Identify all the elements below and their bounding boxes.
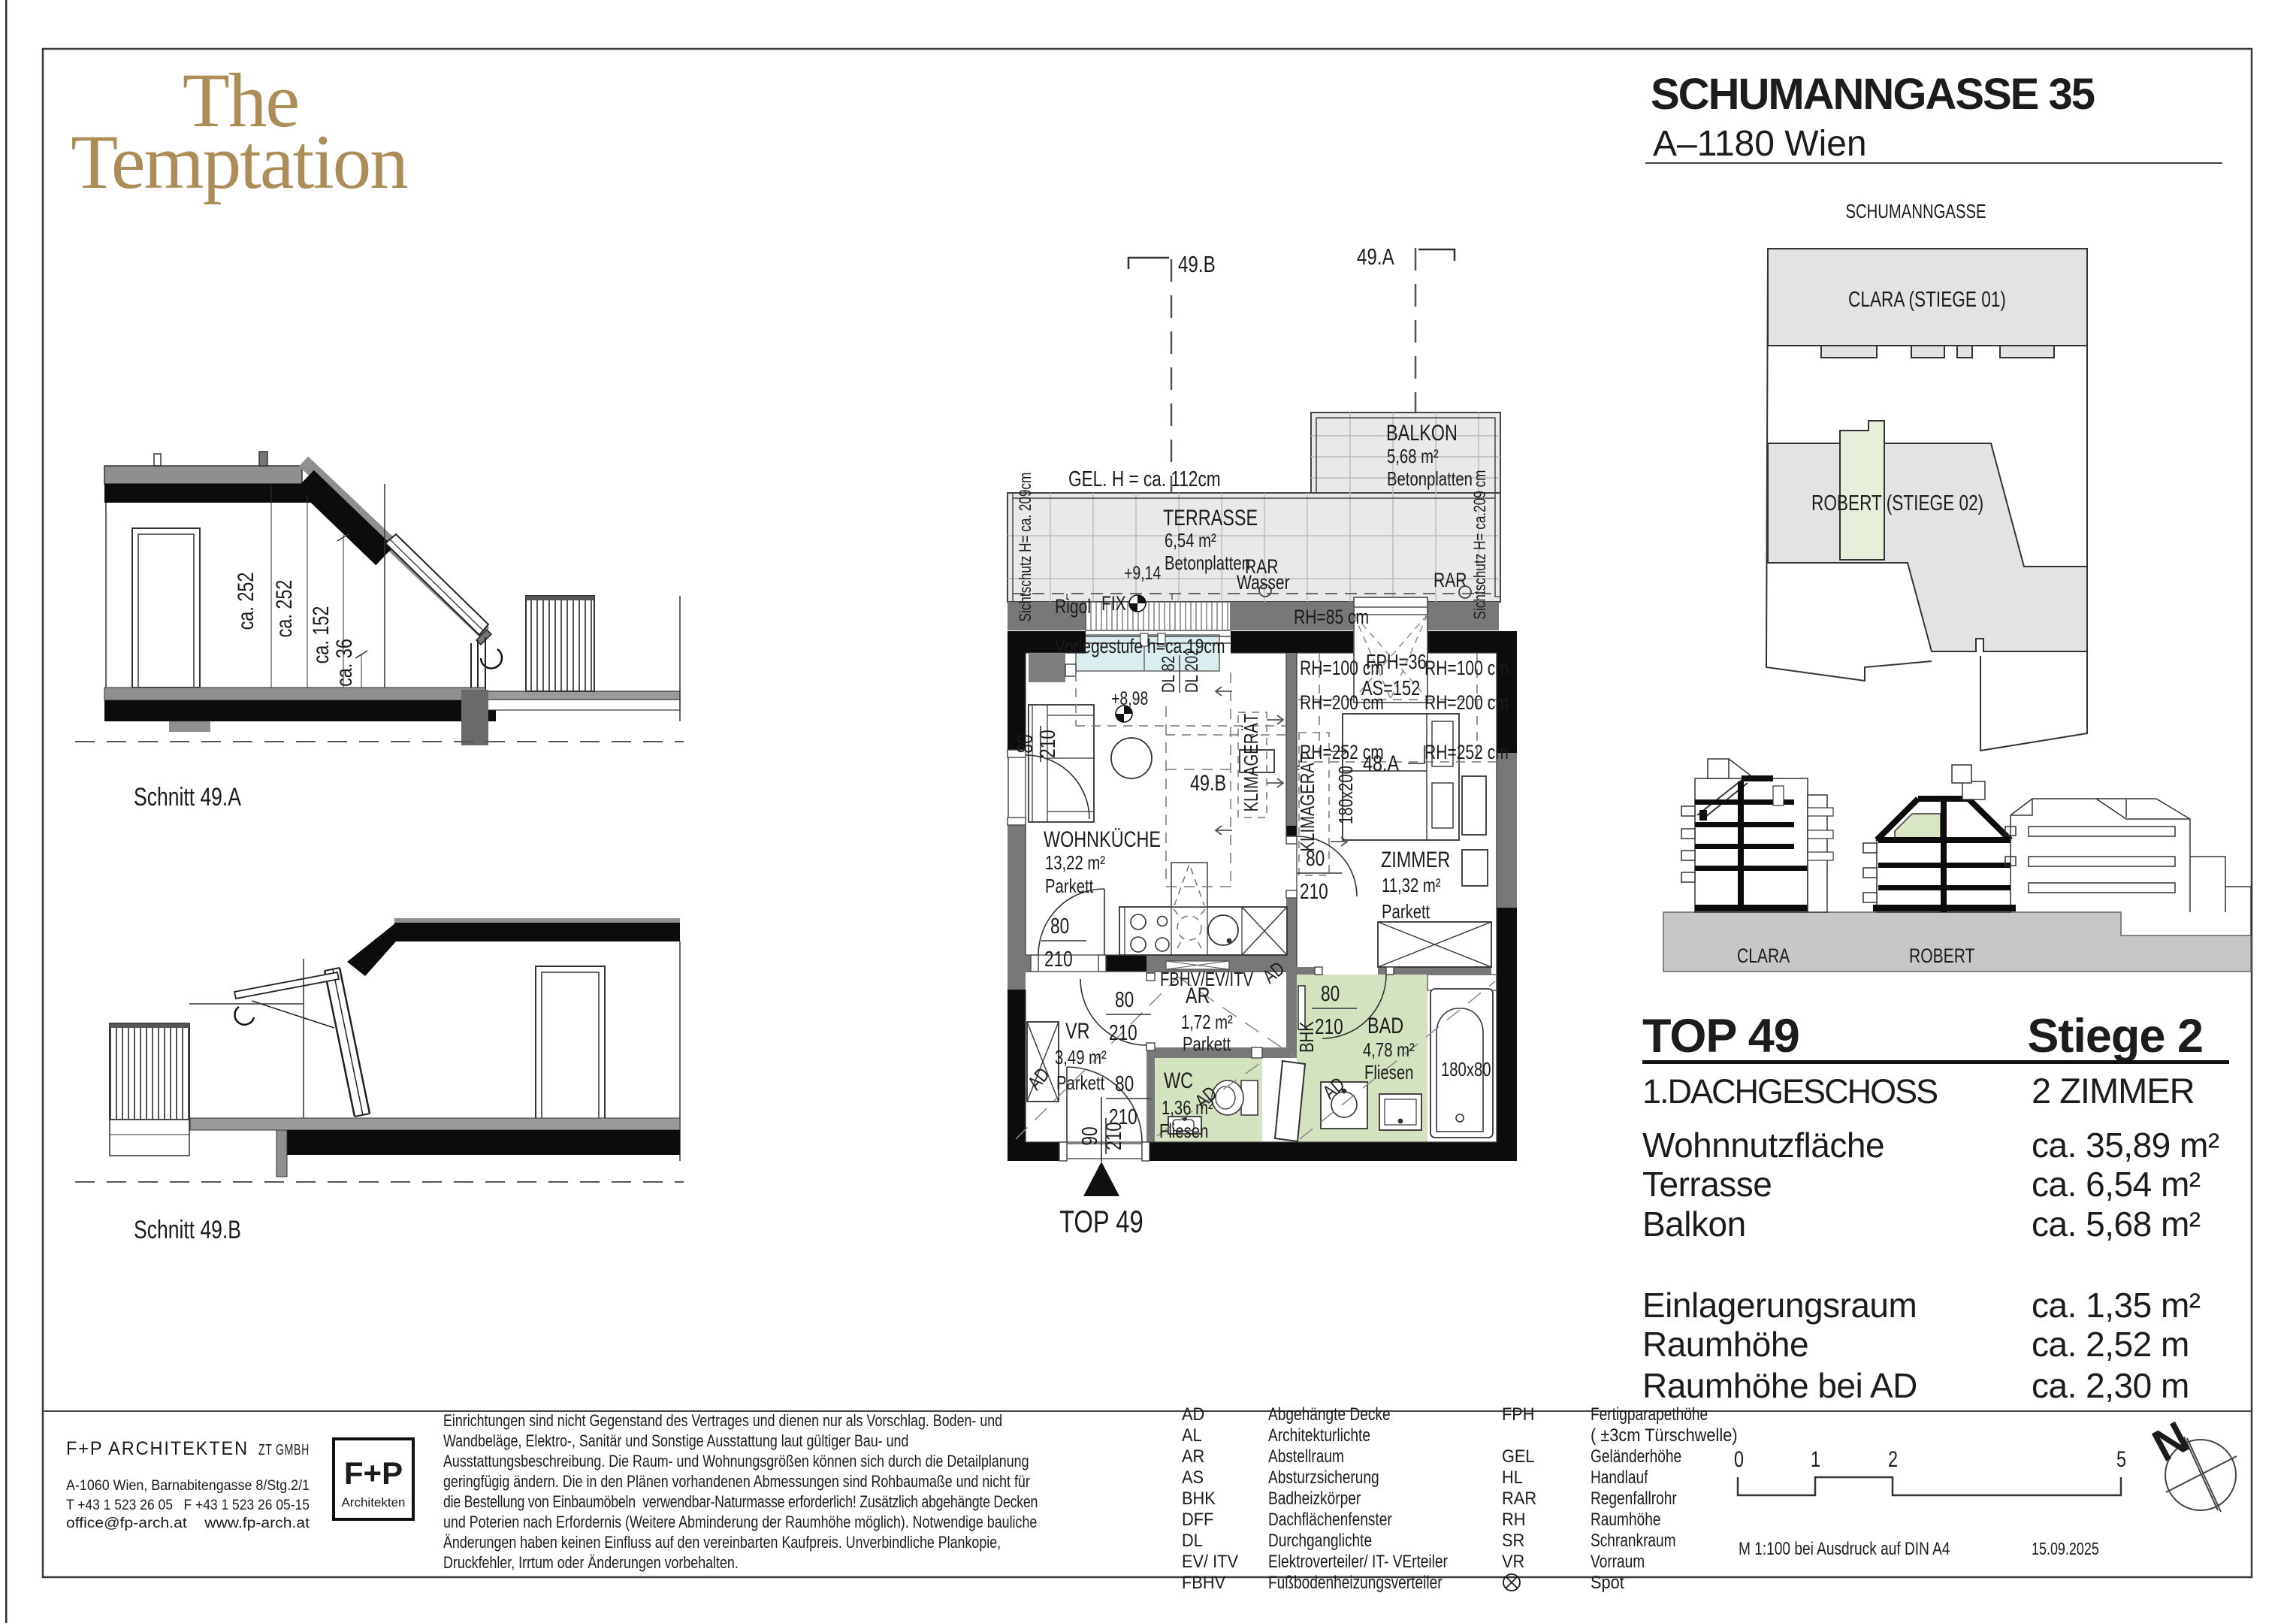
svg-text:Änderungen haben keinen Einflu: Änderungen haben keinen Einfluss auf den… [443,1533,1001,1552]
svg-text:FPH: FPH [1502,1404,1535,1425]
svg-text:WOHNKÜCHE: WOHNKÜCHE [1044,827,1161,852]
svg-text:5,68 m²: 5,68 m² [1387,445,1439,467]
svg-text:T +43 1 523 26 05 F +43 1 52: T +43 1 523 26 05 F +43 1 523 26 05-15 [66,1498,310,1513]
svg-text:ca. 5,68 m²: ca. 5,68 m² [2032,1204,2201,1244]
svg-text:Absturzsicherung: Absturzsicherung [1268,1467,1379,1488]
svg-text:Fliesen: Fliesen [1159,1120,1208,1142]
svg-text:ca. 252: ca. 252 [272,580,297,638]
svg-text:ca. 36: ca. 36 [332,639,357,687]
svg-text:Schrankraum: Schrankraum [1591,1531,1676,1551]
svg-text:DL 202: DL 202 [1182,648,1202,693]
svg-text:Raumhöhe: Raumhöhe [1642,1325,1808,1364]
svg-text:RH=85 cm: RH=85 cm [1294,606,1369,628]
svg-text:Sichtschutz H= ca.209 cm: Sichtschutz H= ca.209 cm [1470,470,1489,620]
svg-text:A-1060 Wien, Barnabitengasse 8: A-1060 Wien, Barnabitengasse 8/Stg.2/1 [66,1478,310,1494]
svg-text:Temptation: Temptation [71,119,407,205]
svg-text:Raumhöhe: Raumhöhe [1591,1510,1661,1530]
svg-text:ca. 152: ca. 152 [309,606,334,664]
svg-text:DL 82: DL 82 [1159,656,1179,693]
svg-text:2 ZIMMER: 2 ZIMMER [2032,1071,2195,1111]
svg-text:210: 210 [1036,730,1060,758]
svg-text:Wohnnutzfläche: Wohnnutzfläche [1642,1126,1884,1165]
svg-text:SR: SR [1502,1531,1524,1551]
svg-text:die Bestellung von Einbaumöbel: die Bestellung von Einbaumöbeln verwendb… [443,1492,1038,1511]
svg-text:TERRASSE: TERRASSE [1163,506,1258,530]
svg-text:Geländerhöhe: Geländerhöhe [1591,1446,1681,1467]
svg-text:und Poterien nach Erfordernis: und Poterien nach Erfordernis (Weitere A… [443,1513,1037,1531]
svg-text:80: 80 [1306,847,1325,871]
svg-text:Parkett: Parkett [1382,900,1430,923]
svg-text:3,49 m²: 3,49 m² [1055,1046,1107,1068]
svg-text:Badheizkörper: Badheizkörper [1268,1489,1361,1509]
svg-text:RH=100 cm: RH=100 cm [1424,657,1509,679]
svg-text:Parkett: Parkett [1045,875,1094,897]
svg-text:13,22 m²: 13,22 m² [1045,851,1105,874]
svg-text:0: 0 [1734,1447,1744,1472]
svg-text:90: 90 [1078,1126,1102,1145]
svg-text:VR: VR [1502,1552,1524,1572]
svg-text:80: 80 [1115,1072,1134,1096]
svg-text:Schnitt 49.A: Schnitt 49.A [134,783,241,811]
svg-text:office@fp-arch.at www.fp-ar: office@fp-arch.at www.fp-arch.at [66,1516,310,1531]
svg-text:Einrichtungen sind nicht Gegen: Einrichtungen sind nicht Gegenstand des … [443,1411,1002,1430]
svg-text:Druckfehler, Irrtum oder Änder: Druckfehler, Irrtum oder Änderungen vorb… [443,1553,739,1572]
svg-text:ROBERT: ROBERT [1909,944,1974,967]
svg-text:1,72 m²: 1,72 m² [1181,1011,1233,1033]
svg-text:Architekturlichte: Architekturlichte [1268,1425,1370,1446]
svg-text:+9,14: +9,14 [1124,563,1161,584]
svg-text:ca. 2,52 m: ca. 2,52 m [2032,1325,2189,1364]
svg-text:Abgehängte Decke: Abgehängte Decke [1268,1404,1391,1425]
svg-text:80: 80 [1115,988,1134,1012]
svg-text:RH: RH [1502,1510,1526,1530]
svg-text:180x200: 180x200 [1334,766,1357,824]
svg-text:Dachflächenfenster: Dachflächenfenster [1268,1510,1392,1530]
svg-text:210: 210 [1044,948,1073,972]
svg-text:Schnitt 49.B: Schnitt 49.B [134,1216,241,1244]
svg-text:5: 5 [2116,1447,2126,1472]
svg-text:Architekten: Architekten [341,1495,405,1510]
svg-text:SCHUMANNGASSE 35: SCHUMANNGASSE 35 [1651,70,2095,119]
svg-text:ZIMMER: ZIMMER [1381,848,1450,872]
svg-text:BALKON: BALKON [1386,421,1458,446]
svg-text:Einlagerungsraum: Einlagerungsraum [1642,1286,1917,1325]
svg-text:80: 80 [1321,982,1340,1006]
svg-text:Fußbodenheizungsverteiler: Fußbodenheizungsverteiler [1268,1573,1443,1593]
svg-text:Parkett: Parkett [1056,1071,1105,1094]
svg-text:Handlauf: Handlauf [1591,1467,1648,1488]
svg-text:DFF: DFF [1182,1510,1213,1530]
svg-text:210: 210 [1109,1021,1137,1045]
svg-text:Wasser: Wasser [1237,571,1290,594]
svg-text:Stiege 2: Stiege 2 [2027,1010,2203,1062]
svg-text:EV/ ITV: EV/ ITV [1182,1552,1239,1572]
svg-text:FIX: FIX [1101,592,1126,615]
svg-text:DL: DL [1182,1531,1203,1551]
svg-text:Wandbeläge, Elektro-, Sanitär: Wandbeläge, Elektro-, Sanitär und Sonsti… [443,1431,908,1450]
svg-text:ROBERT (STIEGE 02): ROBERT (STIEGE 02) [1811,491,1983,515]
svg-text:( ±3cm Türschwelle): ( ±3cm Türschwelle) [1591,1425,1738,1446]
svg-text:KLIMAGERÄT: KLIMAGERÄT [1296,754,1319,852]
svg-text:Ausstattungsbeschreibung. Die: Ausstattungsbeschreibung. Die Raum- und … [443,1452,1029,1470]
svg-text:AD: AD [1182,1404,1204,1425]
svg-text:Balkon: Balkon [1642,1204,1746,1244]
svg-text:ZT GMBH: ZT GMBH [258,1442,310,1458]
svg-text:TOP 49: TOP 49 [1642,1010,1799,1062]
svg-text:HL: HL [1502,1467,1523,1488]
svg-text:Spot: Spot [1591,1573,1624,1593]
svg-text:49.B: 49.B [1178,251,1216,277]
svg-text:VR: VR [1065,1019,1090,1044]
svg-text:Regenfallrohr: Regenfallrohr [1591,1489,1677,1509]
svg-text:RH=200 cm: RH=200 cm [1300,691,1384,714]
svg-text:GEL. H = ca. 112cm: GEL. H = ca. 112cm [1068,467,1221,491]
svg-text:Vorraum: Vorraum [1591,1552,1645,1572]
svg-text:Durchganglichte: Durchganglichte [1268,1531,1372,1551]
svg-text:GEL: GEL [1502,1446,1535,1467]
svg-text:6,54 m²: 6,54 m² [1165,529,1216,552]
svg-text:210: 210 [1315,1015,1343,1039]
svg-text:49.B: 49.B [1190,771,1226,796]
svg-text:Betonplatten: Betonplatten [1387,467,1473,490]
svg-text:BHK: BHK [1182,1489,1216,1509]
svg-text:geringfügig ändern. Die in den: geringfügig ändern. Die in den Plänen vo… [443,1472,1030,1491]
svg-text:RH=252 cm: RH=252 cm [1424,741,1509,763]
svg-text:ca. 35,89 m²: ca. 35,89 m² [2032,1126,2219,1165]
svg-text:CLARA: CLARA [1737,944,1790,967]
svg-text:Fertigparapethöhe: Fertigparapethöhe [1591,1404,1708,1425]
svg-text:Parkett: Parkett [1183,1032,1231,1055]
svg-text:ca. 2,30 m: ca. 2,30 m [2032,1366,2189,1405]
svg-text:RAR: RAR [1502,1489,1536,1509]
svg-text:RH=100 cm: RH=100 cm [1300,657,1384,679]
svg-text:AL: AL [1182,1425,1202,1446]
svg-text:SCHUMANNGASSE: SCHUMANNGASSE [1845,200,1986,222]
svg-text:1: 1 [1811,1447,1820,1472]
svg-text:F+P: F+P [344,1455,403,1491]
svg-text:Terrasse: Terrasse [1642,1165,1772,1204]
svg-text:WC: WC [1164,1068,1193,1093]
svg-text:49.A: 49.A [1357,243,1394,270]
svg-text:11,32 m²: 11,32 m² [1382,874,1441,896]
svg-text:15.09.2025: 15.09.2025 [2032,1539,2099,1558]
svg-text:KLIMAGERÄT: KLIMAGERÄT [1240,714,1262,812]
svg-text:80: 80 [1050,914,1069,938]
svg-text:+8,98: +8,98 [1111,688,1148,709]
svg-text:F+P ARCHITEKTEN: F+P ARCHITEKTEN [66,1438,249,1459]
svg-text:210: 210 [1300,880,1328,904]
svg-text:180x80: 180x80 [1441,1058,1491,1080]
svg-text:48.A: 48.A [1363,751,1399,776]
svg-text:Elektroverteiler/ IT- VErteile: Elektroverteiler/ IT- VErteiler [1268,1552,1448,1572]
svg-text:A–1180 Wien: A–1180 Wien [1653,124,1867,164]
svg-text:ca. 6,54 m²: ca. 6,54 m² [2032,1165,2201,1204]
svg-text:2: 2 [1888,1447,1898,1472]
svg-text:Fliesen: Fliesen [1364,1061,1413,1084]
svg-text:AR: AR [1186,984,1210,1008]
svg-text:CLARA (STIEGE 01): CLARA (STIEGE 01) [1848,288,2006,312]
svg-text:ca. 1,35 m²: ca. 1,35 m² [2032,1286,2201,1325]
svg-text:Abstellraum: Abstellraum [1268,1446,1344,1467]
svg-text:RH=200 cm: RH=200 cm [1424,691,1509,714]
svg-text:M 1:100 bei Ausdruck auf DIN A: M 1:100 bei Ausdruck auf DIN A4 [1739,1539,1950,1559]
svg-text:RAR: RAR [1433,569,1467,591]
svg-text:FBHV: FBHV [1182,1573,1226,1593]
svg-text:ca. 252: ca. 252 [234,573,258,630]
svg-text:1.DACHGESCHOSS: 1.DACHGESCHOSS [1642,1072,1937,1111]
svg-text:Raumhöhe bei AD: Raumhöhe bei AD [1642,1366,1917,1405]
svg-text:BAD: BAD [1367,1014,1403,1038]
svg-text:AR: AR [1182,1446,1204,1467]
svg-text:80: 80 [1014,734,1038,753]
svg-text:4,78 m²: 4,78 m² [1363,1038,1415,1061]
svg-text:TOP 49: TOP 49 [1059,1204,1143,1239]
svg-text:Rigol: Rigol [1055,595,1091,618]
svg-text:Sichtschutz H= ca. 209cm: Sichtschutz H= ca. 209cm [1016,473,1035,622]
svg-text:AS: AS [1182,1467,1204,1488]
svg-text:BHK: BHK [1295,1021,1318,1053]
